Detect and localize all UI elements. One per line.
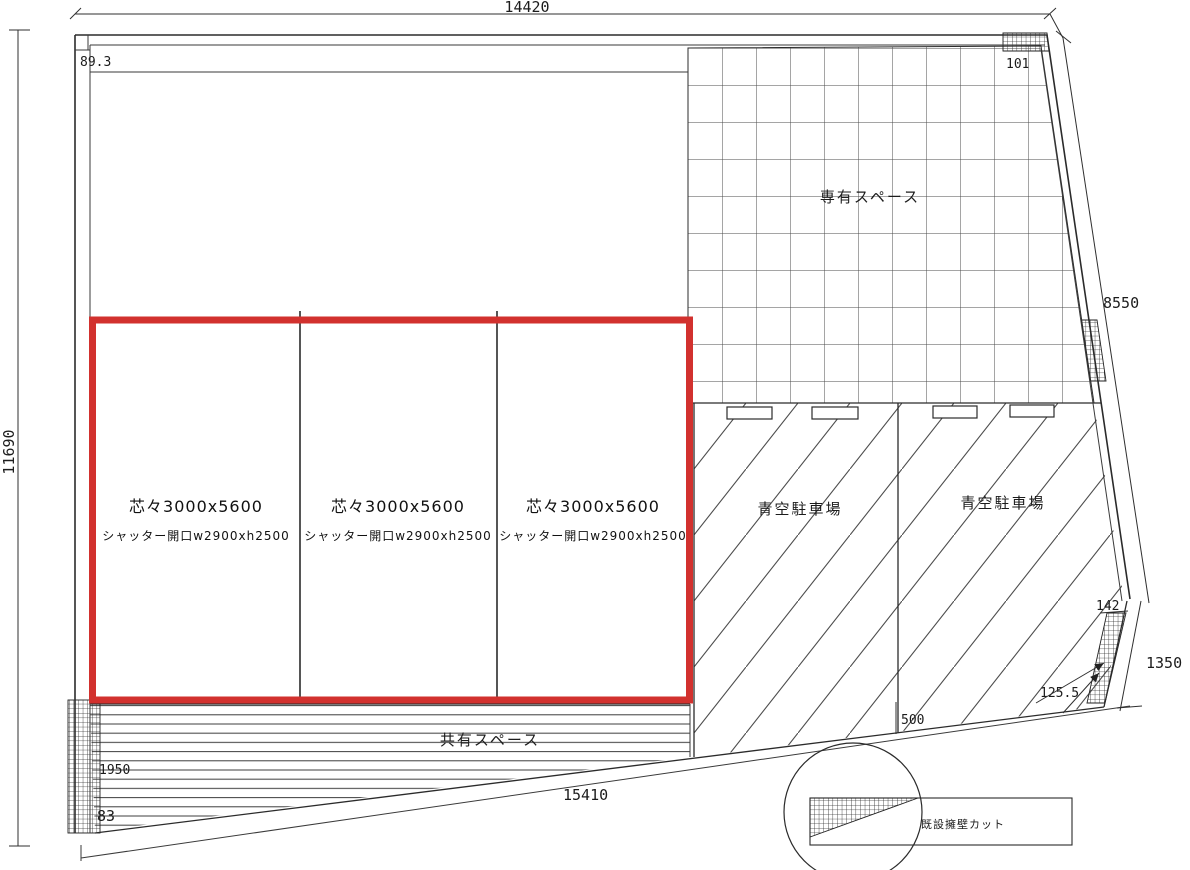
garage-unit-3: 芯々3000x5600 シャッター開口w2900xh2500 <box>499 497 687 543</box>
dim-parking-offset: 500 <box>901 713 924 728</box>
site-plan-drawing: 専有スペース 青空駐車場 青空駐車場 共有スペース <box>0 0 1190 870</box>
dim-offset-top-right: 101 <box>1006 57 1029 72</box>
unit-2-pitch-label: 芯々3000x5600 <box>331 497 465 516</box>
dim-offset-top-left: 89.3 <box>80 55 111 70</box>
dim-common-depth: 1950 <box>99 763 130 778</box>
unit-1-pitch-label: 芯々3000x5600 <box>129 497 263 516</box>
wheel-stop <box>727 407 772 419</box>
common-space-area: 共有スペース <box>90 704 690 831</box>
unit-3-shutter-label: シャッター開口w2900xh2500 <box>499 529 687 543</box>
common-space-label: 共有スペース <box>440 731 540 749</box>
wheel-stop <box>812 407 858 419</box>
common-space-hatch <box>90 705 690 831</box>
detail-circle: 既設擁壁カット <box>784 743 1072 870</box>
open-parking-label-2: 青空駐車場 <box>960 494 1045 512</box>
top-left-corner-box <box>75 35 90 50</box>
wheel-stop <box>933 406 977 418</box>
dim-bottom-value: 15410 <box>563 786 608 804</box>
garage-units: 芯々3000x5600 シャッター開口w2900xh2500 芯々3000x56… <box>93 311 690 700</box>
garage-unit-2: 芯々3000x5600 シャッター開口w2900xh2500 <box>304 497 492 543</box>
parking-hatch <box>694 403 1124 757</box>
dim-top-value: 14420 <box>504 0 549 16</box>
garage-unit-1: 芯々3000x5600 シャッター開口w2900xh2500 <box>102 497 290 543</box>
dim-wall-offset: 125.5 <box>1040 686 1079 701</box>
unit-3-pitch-label: 芯々3000x5600 <box>526 497 660 516</box>
wheel-stop <box>1010 405 1054 417</box>
retaining-wall-label: 既設擁壁カット <box>921 817 1005 831</box>
retaining-wall-wedge <box>810 798 918 837</box>
dim-left-value: 11690 <box>0 429 18 474</box>
wall-block-bottom-left <box>68 700 100 833</box>
exclusive-space-area: 専有スペース <box>688 46 1094 403</box>
open-parking-label-1: 青空駐車場 <box>757 500 842 518</box>
floor-plan-canvas: 専有スペース 青空駐車場 青空駐車場 共有スペース <box>0 0 1190 870</box>
dim-1350-value: 1350 <box>1146 654 1182 672</box>
unit-2-shutter-label: シャッター開口w2900xh2500 <box>304 529 492 543</box>
dim-offset-bottom-left: 83 <box>97 807 115 825</box>
dim-corner-right: 142 <box>1096 599 1119 614</box>
open-parking-area: 青空駐車場 青空駐車場 <box>688 403 1124 757</box>
exclusive-space-label: 専有スペース <box>820 188 920 206</box>
dim-right-value: 8550 <box>1103 294 1139 312</box>
exclusive-space-grid <box>688 46 1094 403</box>
unit-1-shutter-label: シャッター開口w2900xh2500 <box>102 529 290 543</box>
